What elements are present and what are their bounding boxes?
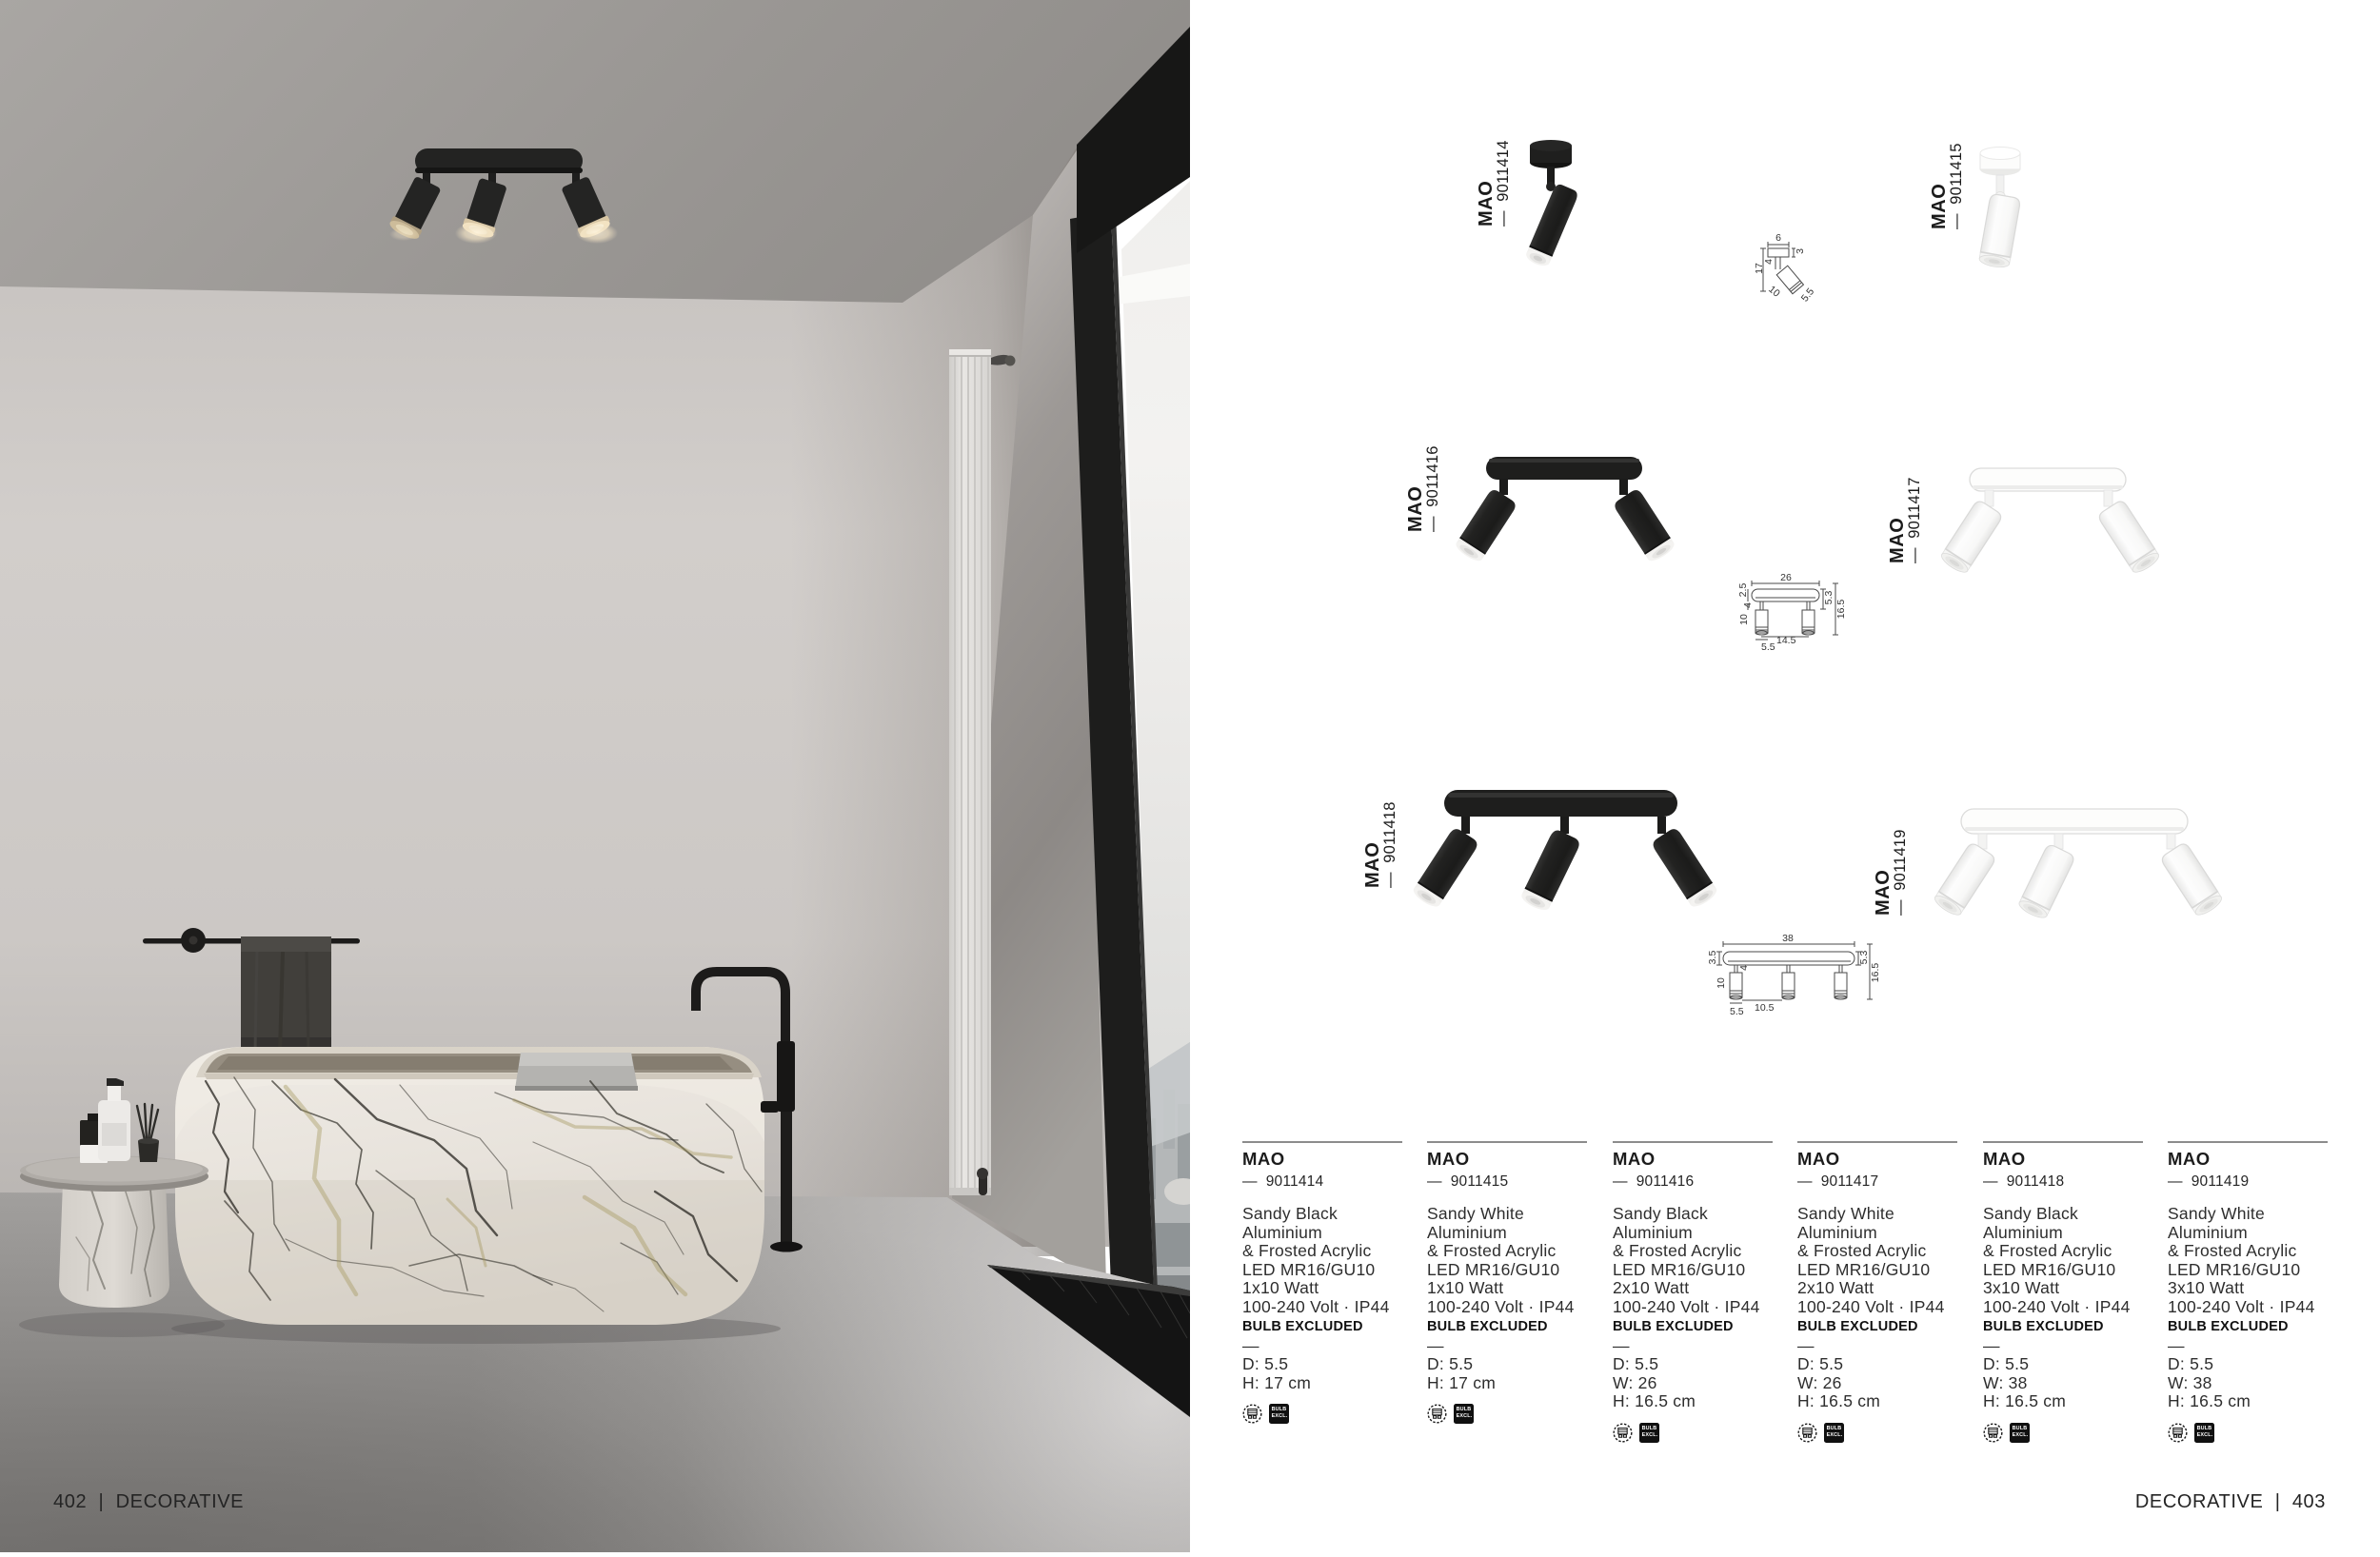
svg-text:3: 3 bbox=[1795, 248, 1806, 254]
svg-text:26: 26 bbox=[1780, 572, 1792, 583]
svg-text:5.5: 5.5 bbox=[1730, 1006, 1744, 1017]
svg-text:5.3: 5.3 bbox=[1823, 591, 1835, 605]
svg-text:16.5: 16.5 bbox=[1870, 963, 1881, 983]
svg-text:10.5: 10.5 bbox=[1755, 1002, 1775, 1014]
svg-text:5.5: 5.5 bbox=[1761, 641, 1775, 653]
svg-text:38: 38 bbox=[1782, 933, 1794, 944]
svg-text:10: 10 bbox=[1766, 284, 1782, 300]
svg-text:14.5: 14.5 bbox=[1776, 635, 1796, 646]
svg-text:5.5: 5.5 bbox=[1799, 286, 1817, 304]
svg-text:16.5: 16.5 bbox=[1835, 600, 1847, 620]
svg-text:17: 17 bbox=[1754, 263, 1765, 274]
svg-text:5.3: 5.3 bbox=[1858, 951, 1870, 965]
svg-text:2.5: 2.5 bbox=[1737, 583, 1749, 598]
svg-text:4: 4 bbox=[1742, 602, 1754, 608]
svg-text:4: 4 bbox=[1738, 965, 1750, 971]
svg-text:10: 10 bbox=[1738, 614, 1750, 625]
svg-text:10: 10 bbox=[1716, 977, 1727, 989]
svg-text:6: 6 bbox=[1775, 232, 1781, 244]
svg-text:3.5: 3.5 bbox=[1707, 951, 1718, 965]
